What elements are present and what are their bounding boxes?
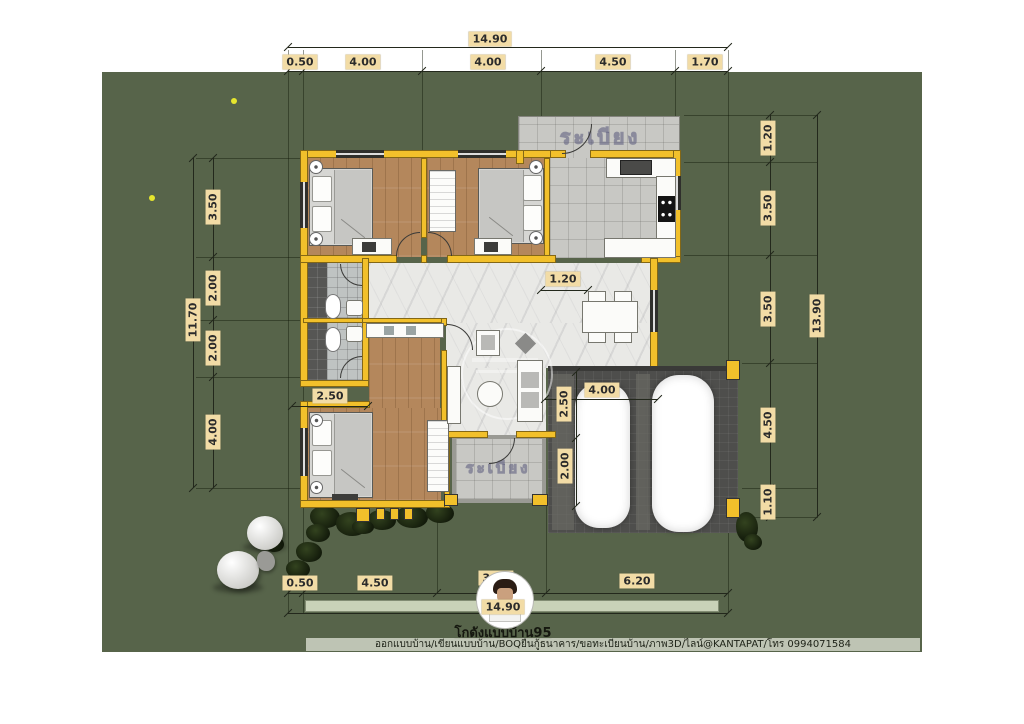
garden-rock [257,551,275,571]
bathtub [325,327,341,352]
dim-top-0: 0.50 [282,55,317,70]
pillow [523,205,542,231]
dim-line [292,406,368,407]
dim-line [576,372,577,506]
stove [658,196,675,222]
yard-light-dot [231,98,237,104]
nightstand-lamp [310,481,323,494]
pillow [312,176,332,202]
wall [300,255,397,263]
topiary-shrub [217,551,259,589]
carport-strip [636,374,650,530]
dim-line [288,71,728,72]
extension-line [546,505,547,593]
window [336,150,384,158]
yard-light-dot [149,195,155,201]
carport-column [726,360,740,380]
pillow [312,450,332,476]
sink-basin [384,326,394,335]
sink-basin [406,326,416,335]
wall [300,500,450,508]
pillow [523,175,542,201]
entry-step [404,508,413,520]
window [650,290,658,332]
dim-line [541,290,588,291]
wall [516,150,524,164]
dim-bottom-3: 6.20 [619,574,654,589]
bush [352,520,374,534]
extension-line [728,50,729,365]
dim-bottom-total: 14.90 [482,600,525,615]
nightstand-lamp [529,231,543,245]
dim-left-0: 3.50 [206,189,221,224]
bed-blanket [334,414,371,496]
bed-blanket [480,170,524,242]
floor-plan-sheet: ระเบียง ระเบียง 14.90 0.50 4.00 4.00 4.5… [0,0,1024,724]
dim-top-4: 1.70 [687,55,722,70]
dim-carport-bay-2: 2.00 [558,448,573,483]
terrace-column [444,494,458,506]
dim-carport-width: 4.00 [584,383,619,398]
extension-line [422,50,423,160]
bush [296,542,322,562]
dining-chair [614,332,632,343]
nightstand-lamp [529,160,543,174]
bed-blanket [334,170,371,244]
sofa [517,360,543,422]
kitchen-counter [604,238,676,258]
nightstand-lamp [309,160,323,174]
dim-top-total: 14.90 [469,32,512,47]
dim-line [288,47,728,48]
extension-line [684,115,818,116]
dim-porch-width: 2.50 [312,389,347,404]
wall [516,431,556,438]
dim-hall-width: 1.20 [545,272,580,287]
toilet [346,300,363,316]
dining-chair [614,291,632,302]
car [575,383,630,528]
window [300,428,308,476]
wall [447,255,556,263]
dining-table [582,301,638,333]
dim-right-total: 13.90 [810,295,825,338]
wall [421,255,427,263]
nightstand-lamp [309,232,323,246]
wall [421,158,427,238]
window [458,150,506,158]
extension-line [675,50,676,118]
bench [332,494,358,500]
entry-step [356,508,370,522]
wardrobe [429,170,456,232]
dim-right-4: 1.10 [761,484,776,519]
car [652,375,714,532]
extension-line [288,50,289,613]
pillow [312,206,332,232]
wardrobe [427,420,449,492]
desk-chair [362,242,376,252]
dim-top-3: 4.50 [595,55,630,70]
dining-chair [588,332,606,343]
terrace-column [532,494,548,506]
dim-right-3: 4.50 [761,407,776,442]
wall [300,380,369,387]
extension-line [742,488,818,489]
bush [744,534,762,550]
wall [444,431,488,438]
bush [306,524,330,542]
kitchen-sink [620,160,652,175]
bathroom1-dark-tile [307,263,327,318]
sofa-cushion [521,372,539,388]
dim-left-3: 4.00 [206,414,221,449]
nightstand-lamp [310,414,323,427]
washbasin-counter [366,323,444,338]
dim-bottom-0: 0.50 [282,576,317,591]
dim-right-1: 3.50 [761,190,776,225]
extension-line [742,363,818,364]
desk-chair [484,242,498,252]
extension-line [684,255,818,256]
dim-right-0: 1.20 [761,120,776,155]
entry-step [376,508,385,520]
window [300,182,308,228]
sofa-cushion [521,392,539,408]
carport-column [726,498,740,518]
toilet [346,326,363,342]
tv-console [447,366,461,424]
dim-top-2: 4.00 [470,55,505,70]
entry-step [390,508,399,520]
dim-left-1: 2.00 [206,270,221,305]
dim-left-2: 2.00 [206,330,221,365]
dim-top-1: 4.00 [345,55,380,70]
bathroom2-dark-tile [307,323,327,380]
contact-banner: ออกแบบบ้าน/เขียนแบบบ้าน/BOQยื่นกู้ธนาคาร… [306,638,920,651]
dim-left-total: 11.70 [186,299,201,342]
dining-chair [588,291,606,302]
wall [544,158,550,258]
dim-right-2: 3.50 [761,291,776,326]
bathtub [325,294,341,319]
extension-line [684,162,818,163]
armchair-cushion [481,335,495,350]
dim-carport-bay-1: 2.50 [557,386,572,421]
dim-bottom-1: 4.50 [357,576,392,591]
coffee-table [477,381,503,407]
topiary-shrub [247,516,283,550]
